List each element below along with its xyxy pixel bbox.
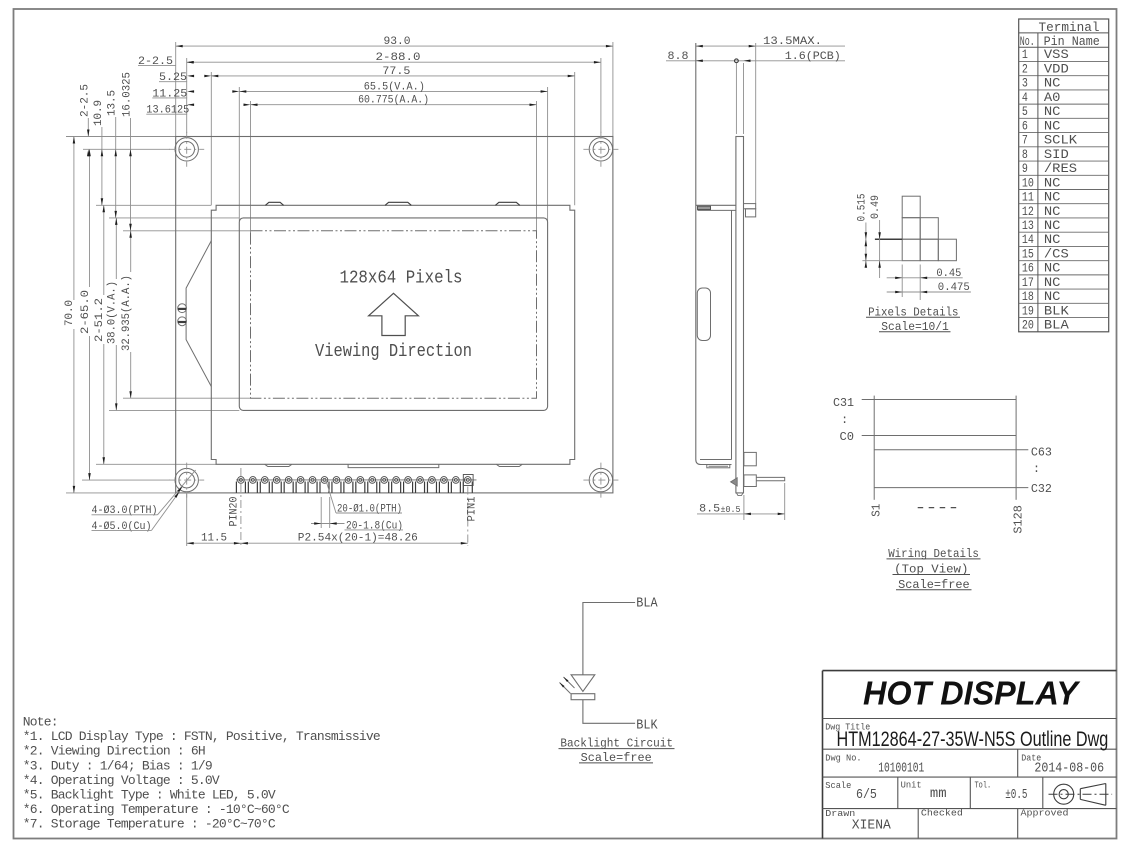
svg-text:Unit: Unit <box>901 780 922 791</box>
svg-text:17: 17 <box>1022 276 1034 290</box>
svg-text:15: 15 <box>1022 247 1034 261</box>
svg-text:13.5MAX.: 13.5MAX. <box>763 36 822 48</box>
svg-text:PIN20: PIN20 <box>229 497 241 527</box>
svg-text:*6. Operating Temperature : -1: *6. Operating Temperature : -10°C~60°C <box>23 802 290 817</box>
svg-text:6: 6 <box>1022 119 1028 133</box>
svg-text:Pin Name: Pin Name <box>1044 34 1100 49</box>
svg-text:*7. Storage Temperature : -20°: *7. Storage Temperature : -20°C~70°C <box>23 816 276 831</box>
svg-text:93.0: 93.0 <box>384 36 411 48</box>
svg-text:±0.5: ±0.5 <box>1005 788 1027 803</box>
svg-text:BLK: BLK <box>636 717 658 733</box>
svg-text:2-2.5: 2-2.5 <box>138 56 173 68</box>
svg-text:3: 3 <box>1022 77 1028 91</box>
svg-text:NC: NC <box>1044 105 1061 119</box>
svg-text:5: 5 <box>1022 105 1028 119</box>
svg-text:2-65.0: 2-65.0 <box>80 290 92 334</box>
svg-text:2-88.0: 2-88.0 <box>376 52 421 64</box>
svg-text:±0.5: ±0.5 <box>721 505 741 515</box>
svg-text:C31: C31 <box>833 396 854 410</box>
svg-text:C63: C63 <box>1031 446 1052 460</box>
svg-text:NC: NC <box>1044 176 1061 190</box>
svg-text:16.0325: 16.0325 <box>122 72 134 117</box>
svg-text:20-1.8(Cu): 20-1.8(Cu) <box>346 520 403 532</box>
svg-text:NC: NC <box>1044 290 1061 304</box>
svg-text:0.45: 0.45 <box>936 268 961 280</box>
svg-text:11.25: 11.25 <box>152 88 187 100</box>
svg-text:NC: NC <box>1044 77 1061 91</box>
svg-text:6/5: 6/5 <box>856 788 877 803</box>
svg-text:*4. Operating Voltage : 5.0V: *4. Operating Voltage : 5.0V <box>23 773 220 788</box>
svg-text:16: 16 <box>1022 262 1034 276</box>
svg-text:Approved: Approved <box>1021 808 1069 819</box>
svg-text:Checked: Checked <box>921 808 963 819</box>
svg-text:13: 13 <box>1022 219 1034 233</box>
svg-text:Scale: Scale <box>825 780 851 791</box>
svg-text:/CS: /CS <box>1044 247 1069 261</box>
svg-text:65.5(V.A.): 65.5(V.A.) <box>364 81 425 93</box>
svg-text:HOT DISPLAY: HOT DISPLAY <box>863 675 1081 712</box>
svg-text:Dwg No.: Dwg No. <box>825 753 861 764</box>
svg-text:XIENA: XIENA <box>852 819 892 834</box>
svg-text:SCLK: SCLK <box>1044 134 1078 148</box>
svg-text:A0: A0 <box>1044 91 1061 105</box>
svg-text:mm: mm <box>930 787 947 802</box>
svg-text:8.8: 8.8 <box>668 51 689 63</box>
svg-text:No.: No. <box>1020 34 1035 49</box>
svg-text:NC: NC <box>1044 233 1061 247</box>
svg-text:BLA: BLA <box>636 595 658 611</box>
svg-text:20: 20 <box>1022 319 1034 333</box>
svg-text:*3. Duty : 1/64; Bias : 1/9: *3. Duty : 1/64; Bias : 1/9 <box>23 758 212 773</box>
svg-text:C0: C0 <box>840 430 855 444</box>
svg-text:S128: S128 <box>1011 505 1025 534</box>
svg-text:*5. Backlight Type : White LED: *5. Backlight Type : White LED, 5.0V <box>23 787 276 802</box>
svg-text:14: 14 <box>1022 233 1034 247</box>
svg-text:20-Ø1.0(PTH): 20-Ø1.0(PTH) <box>337 503 402 515</box>
svg-text:NC: NC <box>1044 191 1061 205</box>
svg-text:8.5: 8.5 <box>699 503 720 515</box>
svg-text:4: 4 <box>1022 91 1028 105</box>
svg-text:10: 10 <box>1022 176 1034 190</box>
svg-text:2014-08-06: 2014-08-06 <box>1034 761 1104 776</box>
svg-text:7: 7 <box>1022 134 1028 148</box>
svg-text:12: 12 <box>1022 205 1034 219</box>
svg-text:BLA: BLA <box>1044 319 1069 333</box>
svg-text:128x64 Pixels: 128x64 Pixels <box>340 269 463 289</box>
svg-text:*1. LCD Display Type : FSTN, P: *1. LCD Display Type : FSTN, Positive, T… <box>23 729 380 744</box>
svg-text:60.775(A.A.): 60.775(A.A.) <box>358 95 429 107</box>
svg-text:NC: NC <box>1044 119 1061 133</box>
svg-text:NC: NC <box>1044 219 1061 233</box>
svg-text:32.935(A.A.): 32.935(A.A.) <box>121 275 133 351</box>
svg-text:11.5: 11.5 <box>201 533 227 545</box>
svg-text:VSS: VSS <box>1044 48 1069 62</box>
svg-text:10100101: 10100101 <box>878 761 924 776</box>
svg-text:VDD: VDD <box>1044 62 1069 76</box>
svg-text:/RES: /RES <box>1044 162 1077 176</box>
svg-text:1: 1 <box>1022 48 1028 62</box>
svg-text:77.5: 77.5 <box>382 66 410 78</box>
svg-text:Tol.: Tol. <box>975 780 992 791</box>
svg-text:0.475: 0.475 <box>938 282 970 294</box>
svg-text:BLK: BLK <box>1044 304 1069 318</box>
svg-text:NC: NC <box>1044 205 1061 219</box>
svg-text:13.5: 13.5 <box>107 90 119 116</box>
svg-text:C32: C32 <box>1031 482 1052 496</box>
svg-text:NC: NC <box>1044 262 1061 276</box>
svg-text:2-51.2: 2-51.2 <box>94 298 106 342</box>
svg-text::: : <box>1033 462 1040 476</box>
svg-text:9: 9 <box>1022 162 1028 176</box>
svg-text:10.9: 10.9 <box>93 100 105 126</box>
svg-text:1.6(PCB): 1.6(PCB) <box>785 51 841 63</box>
svg-text:SID: SID <box>1044 148 1069 162</box>
svg-text:*2. Viewing Direction : 6H: *2. Viewing Direction : 6H <box>23 744 205 759</box>
svg-text:P2.54x(20-1)=48.26: P2.54x(20-1)=48.26 <box>298 533 418 545</box>
svg-text:Drawn: Drawn <box>825 808 855 819</box>
svg-text:13.6125: 13.6125 <box>146 105 189 117</box>
svg-text:11: 11 <box>1022 191 1034 205</box>
svg-text::: : <box>841 413 848 427</box>
svg-text:Note:: Note: <box>23 715 58 730</box>
svg-text:4-Ø3.0(PTH): 4-Ø3.0(PTH) <box>92 505 158 517</box>
svg-text:0.515: 0.515 <box>856 194 868 222</box>
svg-text:2: 2 <box>1022 62 1028 76</box>
svg-text:NC: NC <box>1044 276 1061 290</box>
svg-text:19: 19 <box>1022 304 1034 318</box>
svg-text:38.0(V.A.): 38.0(V.A.) <box>107 281 119 344</box>
svg-text:0.49: 0.49 <box>870 195 882 219</box>
svg-text:5.25: 5.25 <box>159 72 187 84</box>
svg-text:2-2.5: 2-2.5 <box>79 84 91 117</box>
svg-text:8: 8 <box>1022 148 1028 162</box>
svg-text:S1: S1 <box>870 504 884 517</box>
svg-text:18: 18 <box>1022 290 1034 304</box>
svg-text:4-Ø5.0(Cu): 4-Ø5.0(Cu) <box>92 521 152 533</box>
svg-text:Viewing Direction: Viewing Direction <box>315 342 472 362</box>
svg-text:HTM12864-27-35W-N5S Outline Dw: HTM12864-27-35W-N5S Outline Dwg <box>837 728 1109 751</box>
svg-text:70.0: 70.0 <box>64 300 76 326</box>
svg-text:PIN1: PIN1 <box>467 496 479 521</box>
